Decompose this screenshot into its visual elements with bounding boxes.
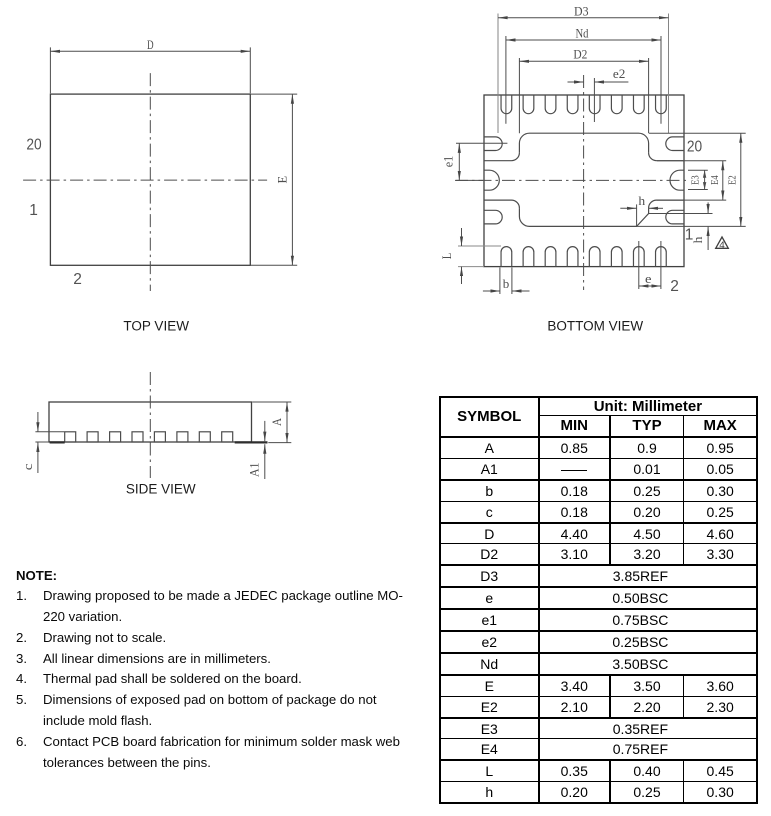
svg-text:h: h: [638, 193, 645, 208]
svg-text:20: 20: [26, 137, 42, 154]
svg-text:SIDE VIEW: SIDE VIEW: [126, 482, 196, 497]
svg-text:L: L: [439, 253, 454, 260]
svg-text:D3: D3: [574, 4, 589, 19]
svg-text:1: 1: [685, 226, 694, 243]
svg-text:A: A: [269, 417, 284, 426]
svg-text:e2: e2: [613, 66, 626, 81]
svg-text:1: 1: [29, 202, 38, 219]
svg-text:b: b: [503, 276, 510, 291]
svg-text:D2: D2: [573, 47, 587, 62]
svg-text:D: D: [147, 37, 154, 52]
svg-text:E3: E3: [690, 175, 701, 185]
svg-text:c: c: [20, 463, 35, 470]
svg-text:e1: e1: [441, 156, 456, 168]
svg-text:e: e: [645, 271, 652, 286]
svg-text:4: 4: [719, 240, 725, 251]
svg-text:Nd: Nd: [576, 26, 589, 41]
svg-text:2: 2: [670, 278, 679, 295]
svg-text:TOP VIEW: TOP VIEW: [123, 319, 189, 334]
svg-text:E: E: [275, 176, 290, 184]
svg-text:20: 20: [687, 138, 703, 155]
svg-text:BOTTOM VIEW: BOTTOM VIEW: [547, 319, 643, 334]
svg-text:E2: E2: [728, 175, 739, 185]
svg-text:E4: E4: [710, 175, 721, 185]
svg-text:2: 2: [73, 271, 82, 288]
svg-text:A1: A1: [247, 463, 262, 478]
